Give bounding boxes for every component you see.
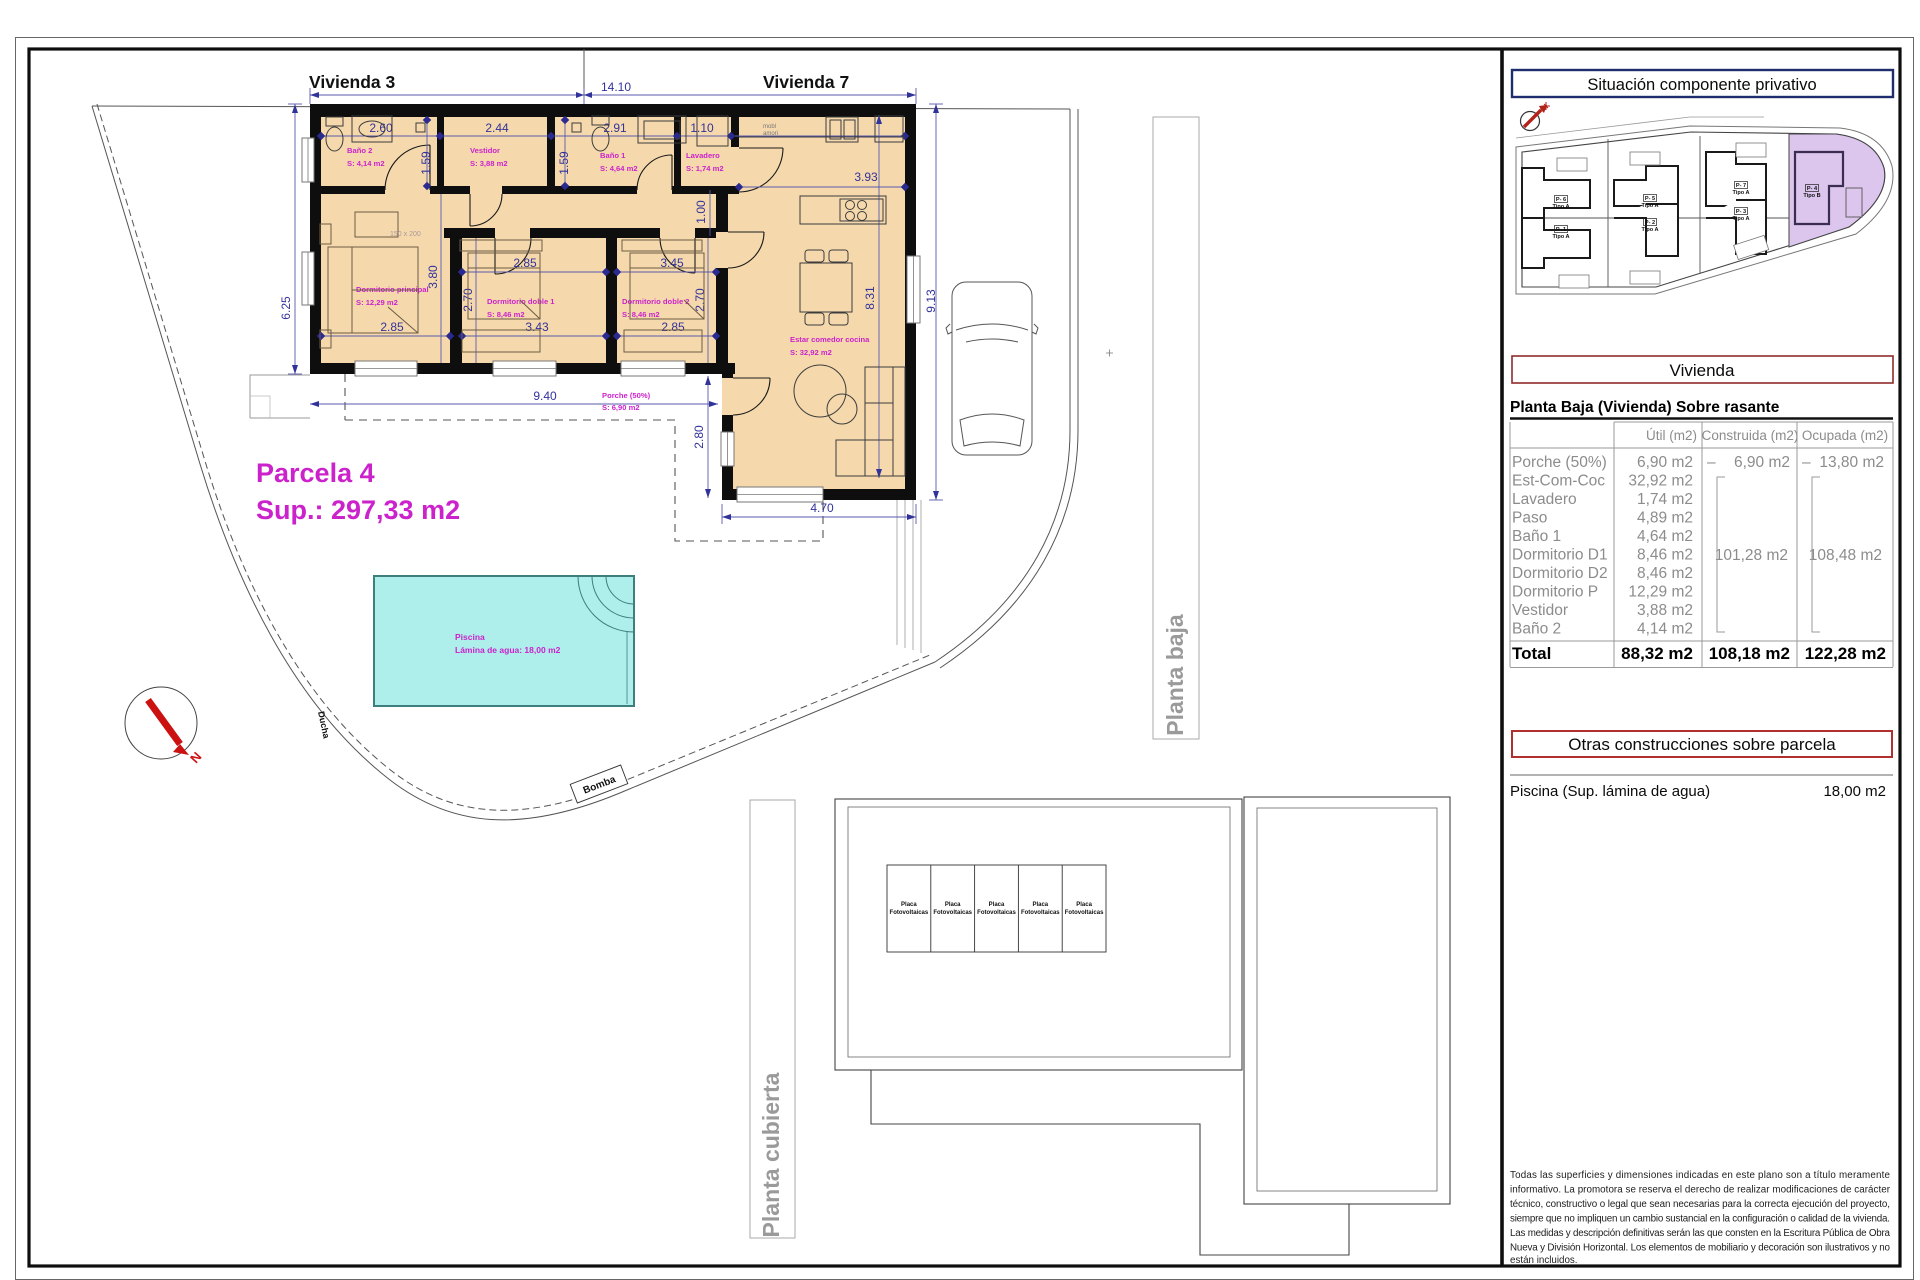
svg-text:1.59: 1.59 <box>419 151 433 175</box>
svg-text:4.70: 4.70 <box>810 501 834 515</box>
svg-text:Placa: Placa <box>989 902 1005 908</box>
svg-text:Fotovoltaicas: Fotovoltaicas <box>1021 910 1060 916</box>
svg-text:Vivienda 7: Vivienda 7 <box>763 72 849 92</box>
svg-text:Planta baja: Planta baja <box>1162 614 1188 736</box>
svg-text:Lavadero: Lavadero <box>1512 491 1577 508</box>
svg-text:P- 2: P- 2 <box>1645 220 1655 226</box>
svg-text:18,00 m2: 18,00 m2 <box>1823 783 1886 800</box>
svg-text:Porche (50%): Porche (50%) <box>1512 454 1607 471</box>
svg-text:Vivienda 3: Vivienda 3 <box>309 72 396 92</box>
svg-text:S: 4,14 m2: S: 4,14 m2 <box>347 159 385 168</box>
svg-text:Tipo A: Tipo A <box>1552 234 1569 240</box>
svg-text:2.70: 2.70 <box>693 288 707 312</box>
svg-text:Tipo A: Tipo A <box>1732 216 1749 222</box>
svg-text:Tipo A: Tipo A <box>1732 190 1749 196</box>
svg-text:Planta Baja (Vivienda) Sobre r: Planta Baja (Vivienda) Sobre rasante <box>1510 399 1780 416</box>
svg-text:3,88 m2: 3,88 m2 <box>1637 602 1693 619</box>
svg-text:Placa: Placa <box>1032 902 1048 908</box>
svg-text:4,14 m2: 4,14 m2 <box>1637 621 1693 638</box>
svg-text:Placa: Placa <box>901 902 917 908</box>
svg-text:2.80: 2.80 <box>692 425 706 449</box>
svg-text:S: 3,88 m2: S: 3,88 m2 <box>470 159 508 168</box>
svg-text:101,28 m2: 101,28 m2 <box>1715 547 1788 564</box>
svg-text:P- 6: P- 6 <box>1556 197 1566 203</box>
svg-text:están incluidos.: están incluidos. <box>1510 1255 1578 1266</box>
svg-text:S: 4,64 m2: S: 4,64 m2 <box>600 164 638 173</box>
svg-text:Ocupada (m2): Ocupada (m2) <box>1802 428 1888 443</box>
svg-text:Dormitorio doble 2: Dormitorio doble 2 <box>622 297 690 306</box>
svg-text:Vivienda: Vivienda <box>1670 361 1735 380</box>
svg-text:Baño 1: Baño 1 <box>1512 528 1561 545</box>
svg-text:P- 4: P- 4 <box>1807 186 1818 192</box>
svg-text:8,46 m2: 8,46 m2 <box>1637 565 1693 582</box>
svg-text:Nueva y División Horizontal. L: Nueva y División Horizontal. Los element… <box>1510 1243 1891 1254</box>
svg-text:P- 5: P- 5 <box>1645 196 1655 202</box>
svg-text:Lámina de agua: 18,00 m2: Lámina de agua: 18,00 m2 <box>455 645 561 655</box>
svg-text:Tipo B: Tipo B <box>1803 193 1820 199</box>
svg-text:informativo. La promotora se r: informativo. La promotora se reserva el … <box>1510 1185 1891 1196</box>
svg-text:Placa: Placa <box>1076 902 1092 908</box>
svg-text:Vestidor: Vestidor <box>1512 602 1568 619</box>
svg-text:P- 7: P- 7 <box>1736 183 1746 189</box>
svg-text:2.85: 2.85 <box>380 320 404 334</box>
svg-text:6.25: 6.25 <box>279 296 293 320</box>
svg-text:1.00: 1.00 <box>694 200 708 224</box>
svg-text:9.40: 9.40 <box>533 389 557 403</box>
svg-text:Porche (50%): Porche (50%) <box>602 391 651 400</box>
svg-text:Otras construcciones sobre par: Otras construcciones sobre parcela <box>1568 735 1836 754</box>
svg-text:Todas las superficies y dimens: Todas las superficies y dimensiones indi… <box>1510 1170 1891 1181</box>
svg-text:8.31: 8.31 <box>863 286 877 310</box>
svg-text:12,29 m2: 12,29 m2 <box>1628 584 1693 601</box>
svg-text:Sup.: 297,33 m2: Sup.: 297,33 m2 <box>256 495 460 525</box>
svg-text:4,89 m2: 4,89 m2 <box>1637 510 1693 527</box>
svg-text:6,90 m2: 6,90 m2 <box>1734 454 1790 471</box>
svg-text:9.13: 9.13 <box>924 289 938 313</box>
svg-text:Baño 1: Baño 1 <box>600 151 626 160</box>
svg-text:108,18 m2: 108,18 m2 <box>1709 644 1790 663</box>
svg-text:–: – <box>1802 454 1811 471</box>
svg-text:2.85: 2.85 <box>661 320 685 334</box>
svg-text:S: 8,46 m2: S: 8,46 m2 <box>622 310 660 319</box>
svg-text:Piscina: Piscina <box>455 632 485 642</box>
svg-text:Fotovoltaicas: Fotovoltaicas <box>977 910 1016 916</box>
svg-text:Placa: Placa <box>945 902 961 908</box>
svg-text:Útil (m2): Útil (m2) <box>1646 428 1697 443</box>
svg-text:Fotovoltaicas: Fotovoltaicas <box>933 910 972 916</box>
svg-text:Dormitorio D1: Dormitorio D1 <box>1512 547 1608 564</box>
svg-text:–: – <box>1707 454 1716 471</box>
svg-text:S: 8,46 m2: S: 8,46 m2 <box>487 310 525 319</box>
svg-text:técnico, constructivo o legal: técnico, constructivo o legal que sean n… <box>1510 1199 1890 1210</box>
svg-text:1.10: 1.10 <box>690 121 714 135</box>
svg-text:Baño 2: Baño 2 <box>1512 621 1561 638</box>
svg-text:Dormitorio D2: Dormitorio D2 <box>1512 565 1608 582</box>
svg-text:S: 12,29 m2: S: 12,29 m2 <box>356 298 398 307</box>
svg-text:P- 1: P- 1 <box>1556 227 1566 233</box>
svg-text:3.93: 3.93 <box>854 170 878 184</box>
svg-text:Construida (m2): Construida (m2) <box>1702 428 1799 443</box>
svg-text:Tipo A: Tipo A <box>1552 204 1569 210</box>
svg-text:1,74 m2: 1,74 m2 <box>1637 491 1693 508</box>
svg-text:3.43: 3.43 <box>525 320 549 334</box>
svg-text:88,32 m2: 88,32 m2 <box>1621 644 1693 663</box>
svg-text:Parcela 4: Parcela 4 <box>256 458 375 488</box>
svg-text:Planta cubierta: Planta cubierta <box>758 1072 784 1237</box>
svg-text:Baño 2: Baño 2 <box>347 146 372 155</box>
svg-text:amori: amori <box>763 131 778 137</box>
svg-text:122,28 m2: 122,28 m2 <box>1805 644 1886 663</box>
svg-text:S: 6,90 m2: S: 6,90 m2 <box>602 403 640 412</box>
svg-text:mobl: mobl <box>763 124 776 130</box>
svg-text:Tipo A: Tipo A <box>1641 227 1658 233</box>
svg-text:14.10: 14.10 <box>601 80 631 94</box>
svg-text:1.59: 1.59 <box>557 151 571 175</box>
svg-text:P- 3: P- 3 <box>1736 209 1746 215</box>
svg-text:150 x 200: 150 x 200 <box>390 231 421 238</box>
svg-text:6,90 m2: 6,90 m2 <box>1637 454 1693 471</box>
svg-text:Est-Com-Coc: Est-Com-Coc <box>1512 473 1605 490</box>
svg-text:S: 1,74 m2: S: 1,74 m2 <box>686 164 724 173</box>
svg-text:4,64 m2: 4,64 m2 <box>1637 528 1693 545</box>
svg-text:Vestidor: Vestidor <box>470 146 500 155</box>
svg-text:Fotovoltaicas: Fotovoltaicas <box>890 910 929 916</box>
svg-text:Situación componente privativo: Situación componente privativo <box>1587 76 1816 94</box>
svg-text:Piscina (Sup. lámina de agua): Piscina (Sup. lámina de agua) <box>1510 783 1710 800</box>
svg-text:siempre que no impliquen un ca: siempre que no impliquen un cambio susta… <box>1510 1214 1890 1225</box>
svg-text:Dormitorio P: Dormitorio P <box>1512 584 1598 601</box>
svg-text:13,80 m2: 13,80 m2 <box>1819 454 1884 471</box>
svg-text:Total: Total <box>1512 644 1551 663</box>
svg-text:108,48 m2: 108,48 m2 <box>1809 547 1882 564</box>
svg-text:Lavadero: Lavadero <box>686 151 720 160</box>
svg-text:Tipo A: Tipo A <box>1641 203 1658 209</box>
svg-text:32,92 m2: 32,92 m2 <box>1628 473 1693 490</box>
svg-text:Fotovoltaicas: Fotovoltaicas <box>1065 910 1104 916</box>
svg-text:Las medidas y descripción defi: Las medidas y descripción definitivas se… <box>1510 1228 1891 1239</box>
svg-text:8,46 m2: 8,46 m2 <box>1637 547 1693 564</box>
svg-text:Estar comedor cocina: Estar comedor cocina <box>790 335 870 344</box>
svg-text:2.44: 2.44 <box>485 121 509 135</box>
svg-text:S: 32,92 m2: S: 32,92 m2 <box>790 348 832 357</box>
svg-text:Paso: Paso <box>1512 510 1547 527</box>
svg-text:2.91: 2.91 <box>603 121 627 135</box>
